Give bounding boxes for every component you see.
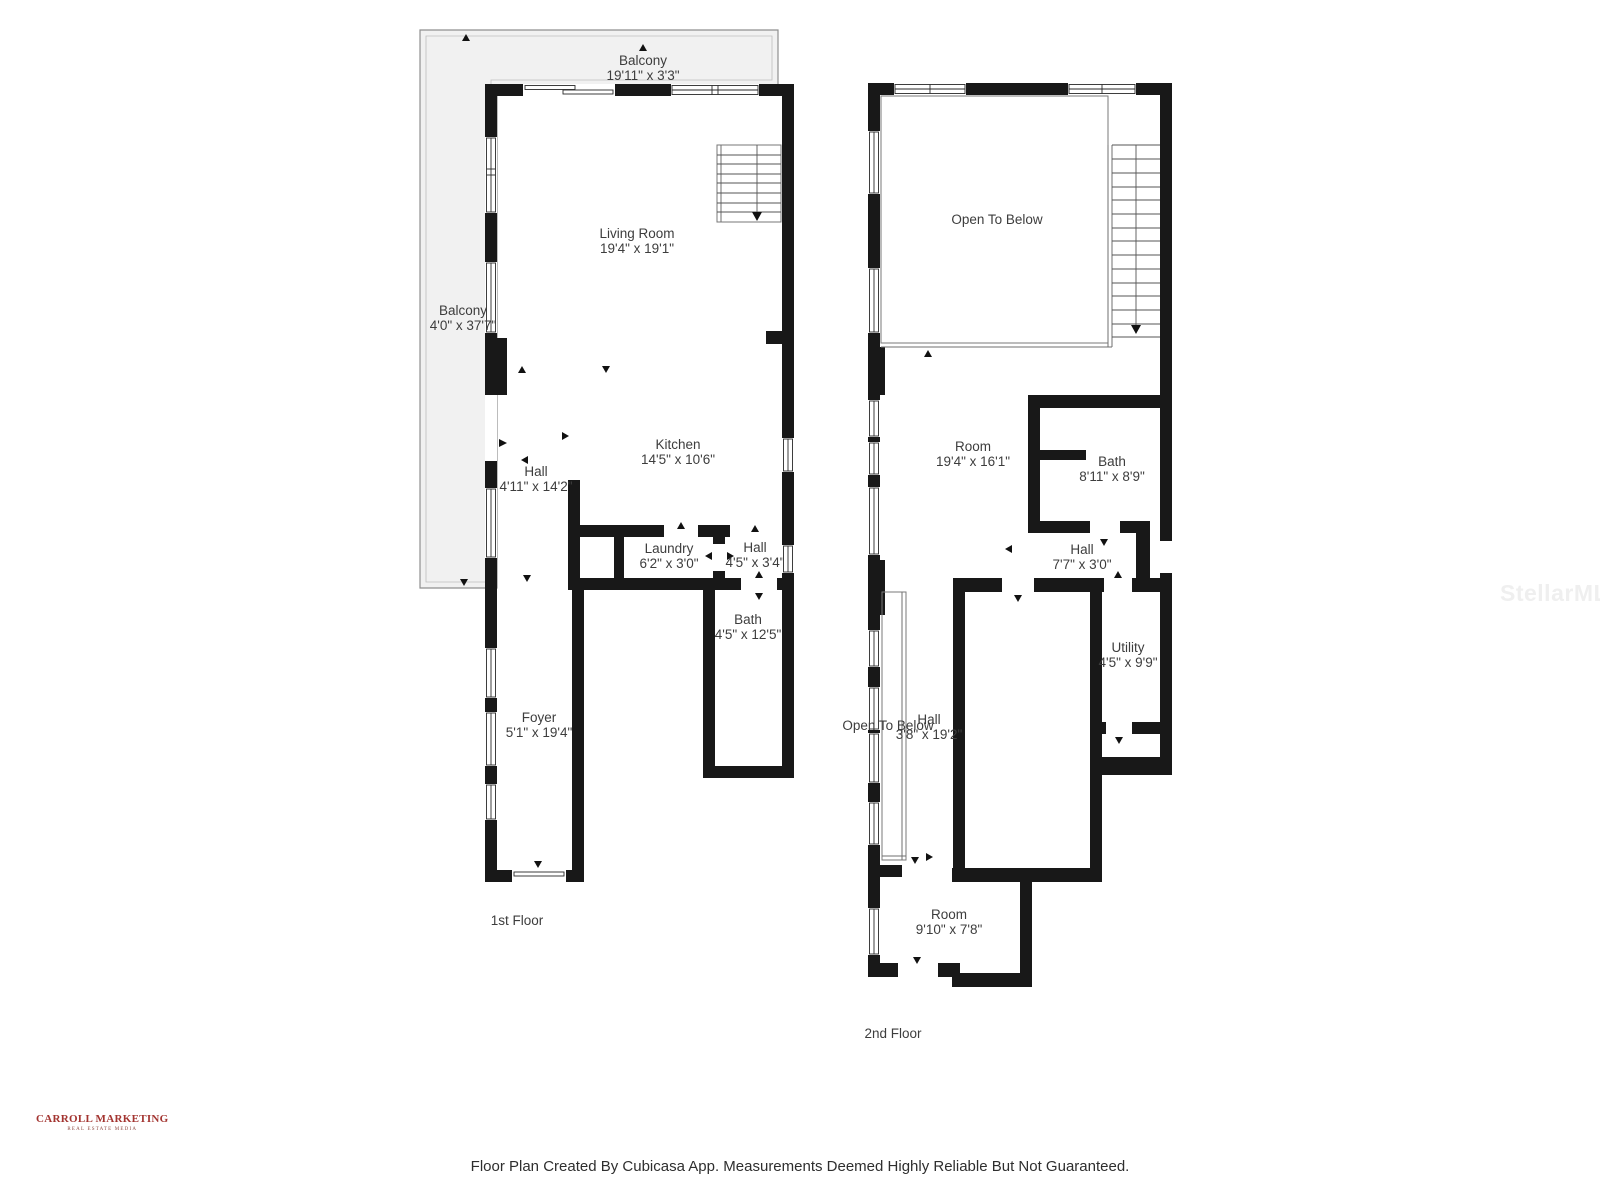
- window-icon: [1068, 83, 1136, 95]
- window-icon: [894, 83, 966, 95]
- window-icon: [868, 268, 880, 333]
- room-label-kitchen: Kitchen 14'5" x 10'6": [641, 437, 715, 467]
- stairs-icon: [1112, 145, 1160, 337]
- window-icon: [868, 487, 880, 555]
- first-floor-plan: [420, 30, 794, 882]
- window-icon: [485, 648, 497, 698]
- room-label-room-small: Room 9'10" x 7'8": [916, 907, 983, 937]
- stairs-icon: [717, 145, 781, 222]
- room-label-hall-upper-f1: Hall 4'11" x 14'2": [499, 464, 572, 494]
- brand-tagline: REAL ESTATE MEDIA: [36, 1127, 169, 1132]
- room-label-foyer: Foyer 5'1" x 19'4": [506, 710, 573, 740]
- window-icon: [868, 908, 880, 955]
- window-icon: [868, 442, 880, 475]
- floorplan-drawing: [0, 0, 1600, 1200]
- room-label-room-large: Room 19'4" x 16'1": [936, 439, 1010, 469]
- room-label-balcony-left: Balcony 4'0" x 37'7": [430, 303, 497, 333]
- entry-door-icon: [512, 861, 566, 882]
- stellar-mls-watermark: StellarMLS: [1500, 580, 1600, 607]
- room-label-hall-f2: Hall 7'7" x 3'0": [1052, 542, 1111, 572]
- window-icon: [485, 137, 497, 213]
- label-open-to-below-top: Open To Below: [951, 212, 1042, 227]
- room-label-utility: Utility 4'5" x 9'9": [1098, 640, 1157, 670]
- room-label-balcony-top: Balcony 19'11" x 3'3": [606, 53, 679, 83]
- window-icon: [868, 400, 880, 437]
- room-label-laundry: Laundry 6'2" x 3'0": [639, 541, 698, 571]
- brand-company-name: CARROLL MARKETING: [36, 1113, 169, 1125]
- floor1-title: 1st Floor: [491, 913, 544, 928]
- sliding-door-icon: [523, 84, 615, 96]
- window-icon: [868, 630, 880, 667]
- door-opening: [485, 395, 507, 461]
- window-icon: [868, 802, 880, 845]
- carroll-marketing-logo: CARROLL MARKETING REAL ESTATE MEDIA: [36, 1113, 169, 1132]
- room-label-hall-long: Hall 3'8" x 19'2": [896, 712, 963, 742]
- room-label-bath-f2: Bath 8'11" x 8'9": [1079, 454, 1145, 484]
- window-icon: [868, 733, 880, 783]
- window-icon: [671, 84, 759, 96]
- window-icon: [485, 784, 497, 820]
- window-icon: [782, 438, 794, 472]
- window-icon: [485, 712, 497, 766]
- floor2-title: 2nd Floor: [864, 1026, 921, 1041]
- window-icon: [485, 488, 497, 558]
- disclaimer-text: Floor Plan Created By Cubicasa App. Meas…: [471, 1158, 1130, 1175]
- room-label-bath-f1: Bath 4'5" x 12'5": [715, 612, 782, 642]
- window-icon: [868, 131, 880, 194]
- room-label-hall-small-f1: Hall 4'5" x 3'4": [725, 540, 784, 570]
- floorplan-page: Balcony 19'11" x 3'3" Balcony 4'0" x 37'…: [0, 0, 1600, 1200]
- room-label-living-room: Living Room 19'4" x 19'1": [599, 226, 674, 256]
